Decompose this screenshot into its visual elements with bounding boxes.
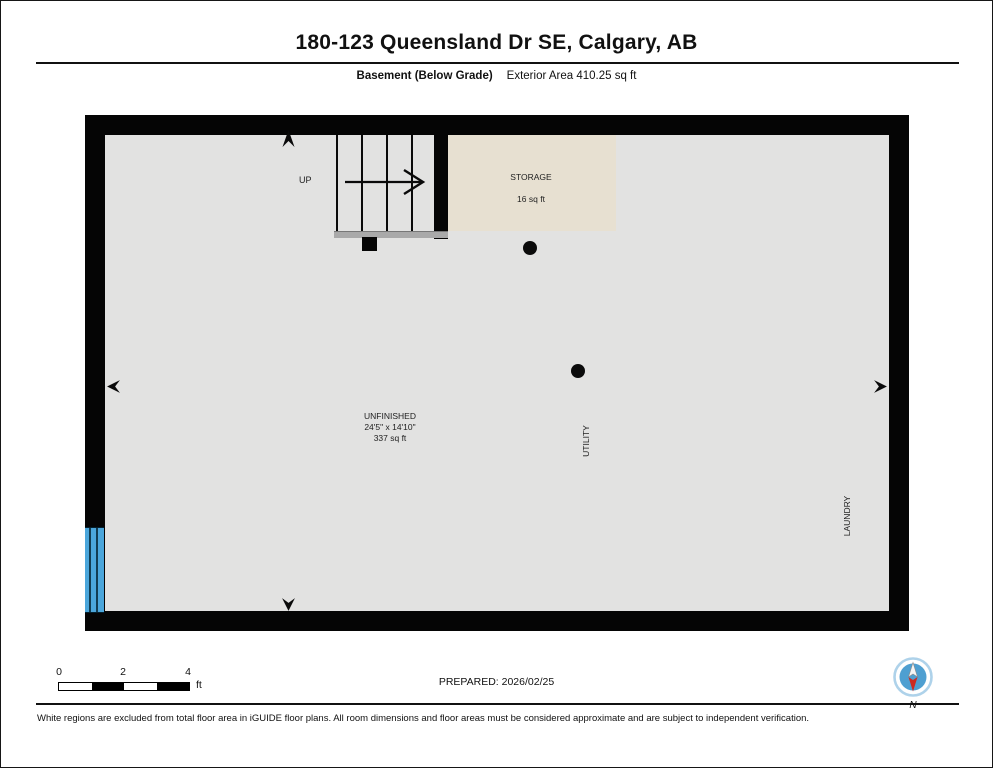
north-dart-icon bbox=[281, 129, 296, 148]
utility-room-label: UTILITY bbox=[581, 425, 591, 457]
unfinished-name: UNFINISHED bbox=[364, 411, 416, 421]
stairs-up-label: UP bbox=[299, 175, 312, 185]
compass-north-label: N bbox=[893, 700, 933, 711]
page-title: 180-123 Queensland Dr SE, Calgary, AB bbox=[1, 31, 992, 55]
wall-dart-right-icon bbox=[873, 379, 888, 394]
support-post-dot bbox=[523, 241, 537, 255]
exterior-area-label: Exterior Area 410.25 sq ft bbox=[507, 70, 637, 82]
header-divider bbox=[36, 62, 959, 64]
floor-subtitle: Basement (Below Grade)Exterior Area 410.… bbox=[1, 70, 992, 82]
wall-dart-left-icon bbox=[106, 379, 121, 394]
window-marker bbox=[85, 527, 104, 613]
stair-base-rail bbox=[334, 231, 448, 238]
stair-direction-arrow-icon bbox=[342, 167, 430, 197]
disclaimer-text: White regions are excluded from total fl… bbox=[37, 713, 957, 724]
window-pane-line bbox=[89, 528, 91, 612]
wall-dart-down-icon bbox=[281, 597, 296, 612]
footer-divider bbox=[36, 703, 959, 705]
stair-tread-line bbox=[336, 135, 338, 231]
storage-name: STORAGE bbox=[510, 172, 551, 182]
room-storage: STORAGE 16 sq ft bbox=[446, 135, 616, 231]
window-pane-line bbox=[96, 528, 98, 612]
floorplan-canvas: STORAGE 16 sq ft UP UNFINISHED 24'5" x 1… bbox=[85, 115, 909, 631]
unfinished-area: 337 sq ft bbox=[374, 433, 407, 443]
prepared-date-label: PREPARED: 2026/02/25 bbox=[1, 676, 992, 688]
unfinished-dimensions: 24'5" x 14'10" bbox=[364, 422, 415, 432]
support-post-dot bbox=[571, 364, 585, 378]
stairwell-wall bbox=[434, 135, 448, 239]
stair-post bbox=[362, 237, 377, 251]
floor-name-label: Basement (Below Grade) bbox=[357, 70, 493, 82]
unfinished-room-label: UNFINISHED 24'5" x 14'10" 337 sq ft bbox=[310, 411, 470, 444]
laundry-room-label: LAUNDRY bbox=[842, 496, 852, 536]
storage-room-label: STORAGE 16 sq ft bbox=[510, 161, 551, 205]
storage-area: 16 sq ft bbox=[517, 194, 545, 204]
floorplan-page: 180-123 Queensland Dr SE, Calgary, AB Ba… bbox=[0, 0, 993, 768]
compass-icon bbox=[893, 657, 933, 697]
